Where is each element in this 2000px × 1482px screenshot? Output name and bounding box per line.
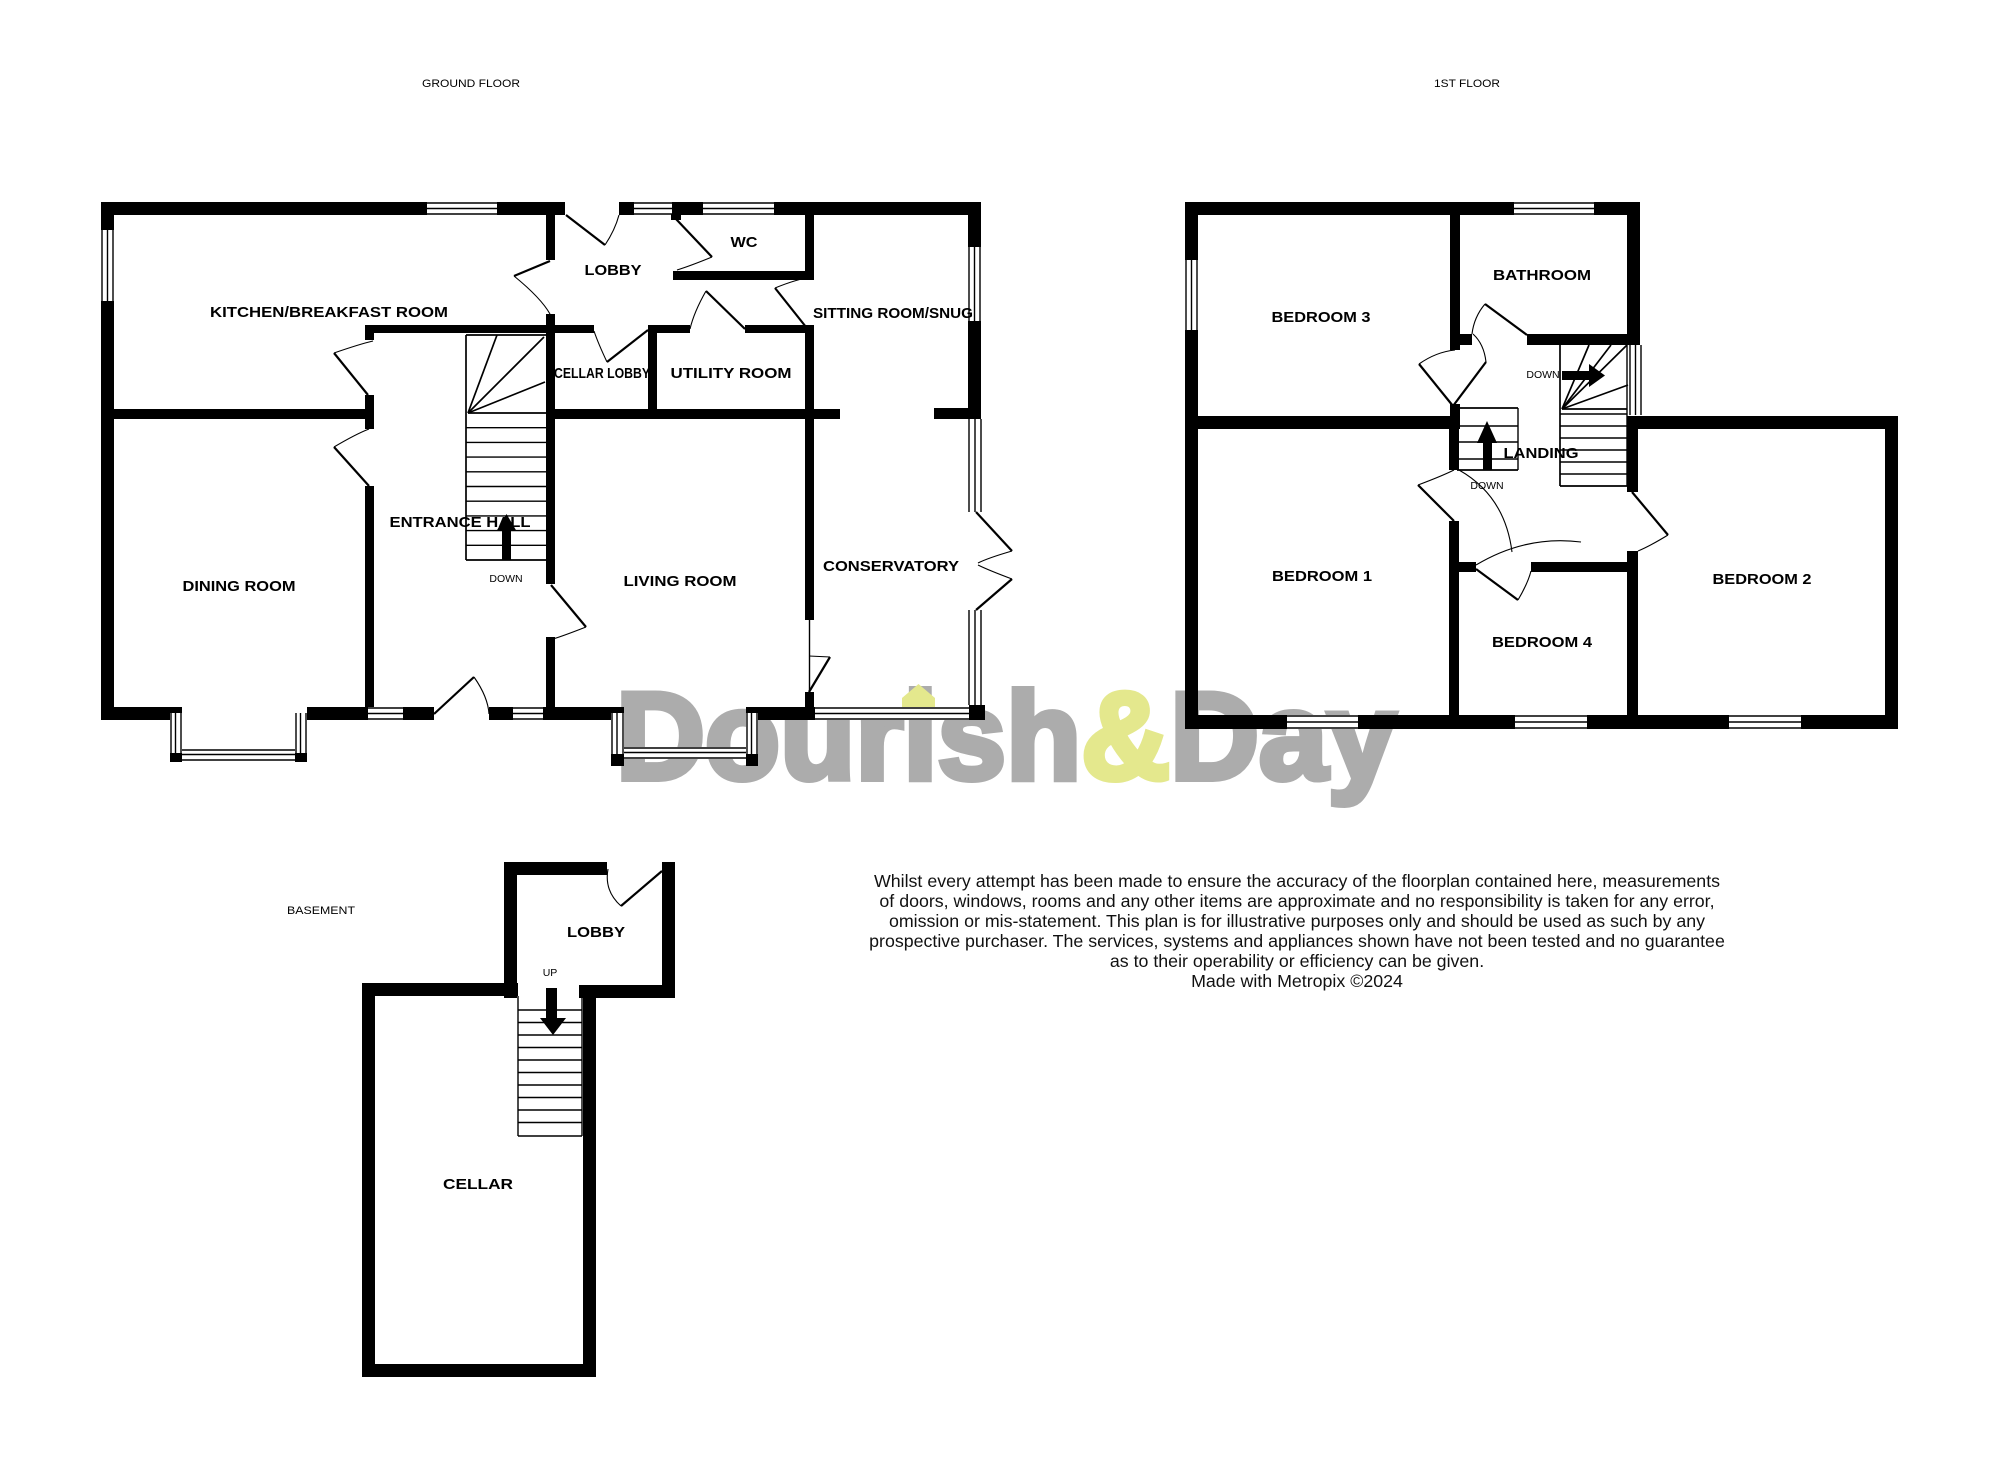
svg-text:DOWN: DOWN <box>1470 480 1503 492</box>
svg-text:Made with Metropix ©2024: Made with Metropix ©2024 <box>1191 971 1403 991</box>
svg-text:BATHROOM: BATHROOM <box>1493 267 1591 284</box>
svg-text:omission or mis-statement. Thi: omission or mis-statement. This plan is … <box>889 911 1705 931</box>
svg-text:DINING ROOM: DINING ROOM <box>183 578 296 595</box>
svg-text:WC: WC <box>731 234 758 251</box>
svg-text:BEDROOM 1: BEDROOM 1 <box>1272 568 1372 585</box>
svg-text:BASEMENT: BASEMENT <box>287 905 355 917</box>
svg-text:Whilst every attempt has been: Whilst every attempt has been made to en… <box>874 871 1720 891</box>
svg-text:DOWN: DOWN <box>489 573 522 585</box>
svg-text:Dourish&Day: Dourish&Day <box>616 668 1396 806</box>
svg-text:BEDROOM 2: BEDROOM 2 <box>1713 571 1812 588</box>
svg-text:as to their operability or eff: as to their operability or efficiency ca… <box>1110 951 1484 971</box>
svg-text:UTILITY ROOM: UTILITY ROOM <box>671 365 792 382</box>
svg-text:CONSERVATORY: CONSERVATORY <box>823 558 959 575</box>
svg-text:LOBBY: LOBBY <box>585 262 642 279</box>
svg-text:GROUND FLOOR: GROUND FLOOR <box>422 78 520 90</box>
svg-text:CELLAR: CELLAR <box>443 1176 513 1193</box>
svg-text:ENTRANCE HALL: ENTRANCE HALL <box>390 514 531 531</box>
svg-text:BEDROOM 3: BEDROOM 3 <box>1272 309 1371 326</box>
svg-text:SITTING ROOM/SNUG: SITTING ROOM/SNUG <box>813 305 973 322</box>
svg-text:LANDING: LANDING <box>1504 445 1579 462</box>
svg-text:DOWN: DOWN <box>1526 369 1559 381</box>
svg-text:of doors, windows, rooms and a: of doors, windows, rooms and any other i… <box>879 891 1714 911</box>
svg-text:LOBBY: LOBBY <box>567 924 625 941</box>
svg-text:CELLAR LOBBY: CELLAR LOBBY <box>554 365 650 382</box>
svg-text:LIVING ROOM: LIVING ROOM <box>624 573 737 590</box>
svg-text:prospective purchaser. The ser: prospective purchaser. The services, sys… <box>869 931 1725 951</box>
svg-text:BEDROOM 4: BEDROOM 4 <box>1492 634 1593 651</box>
svg-text:1ST FLOOR: 1ST FLOOR <box>1434 78 1500 90</box>
svg-text:KITCHEN/BREAKFAST ROOM: KITCHEN/BREAKFAST ROOM <box>210 304 448 321</box>
svg-text:UP: UP <box>543 967 558 979</box>
